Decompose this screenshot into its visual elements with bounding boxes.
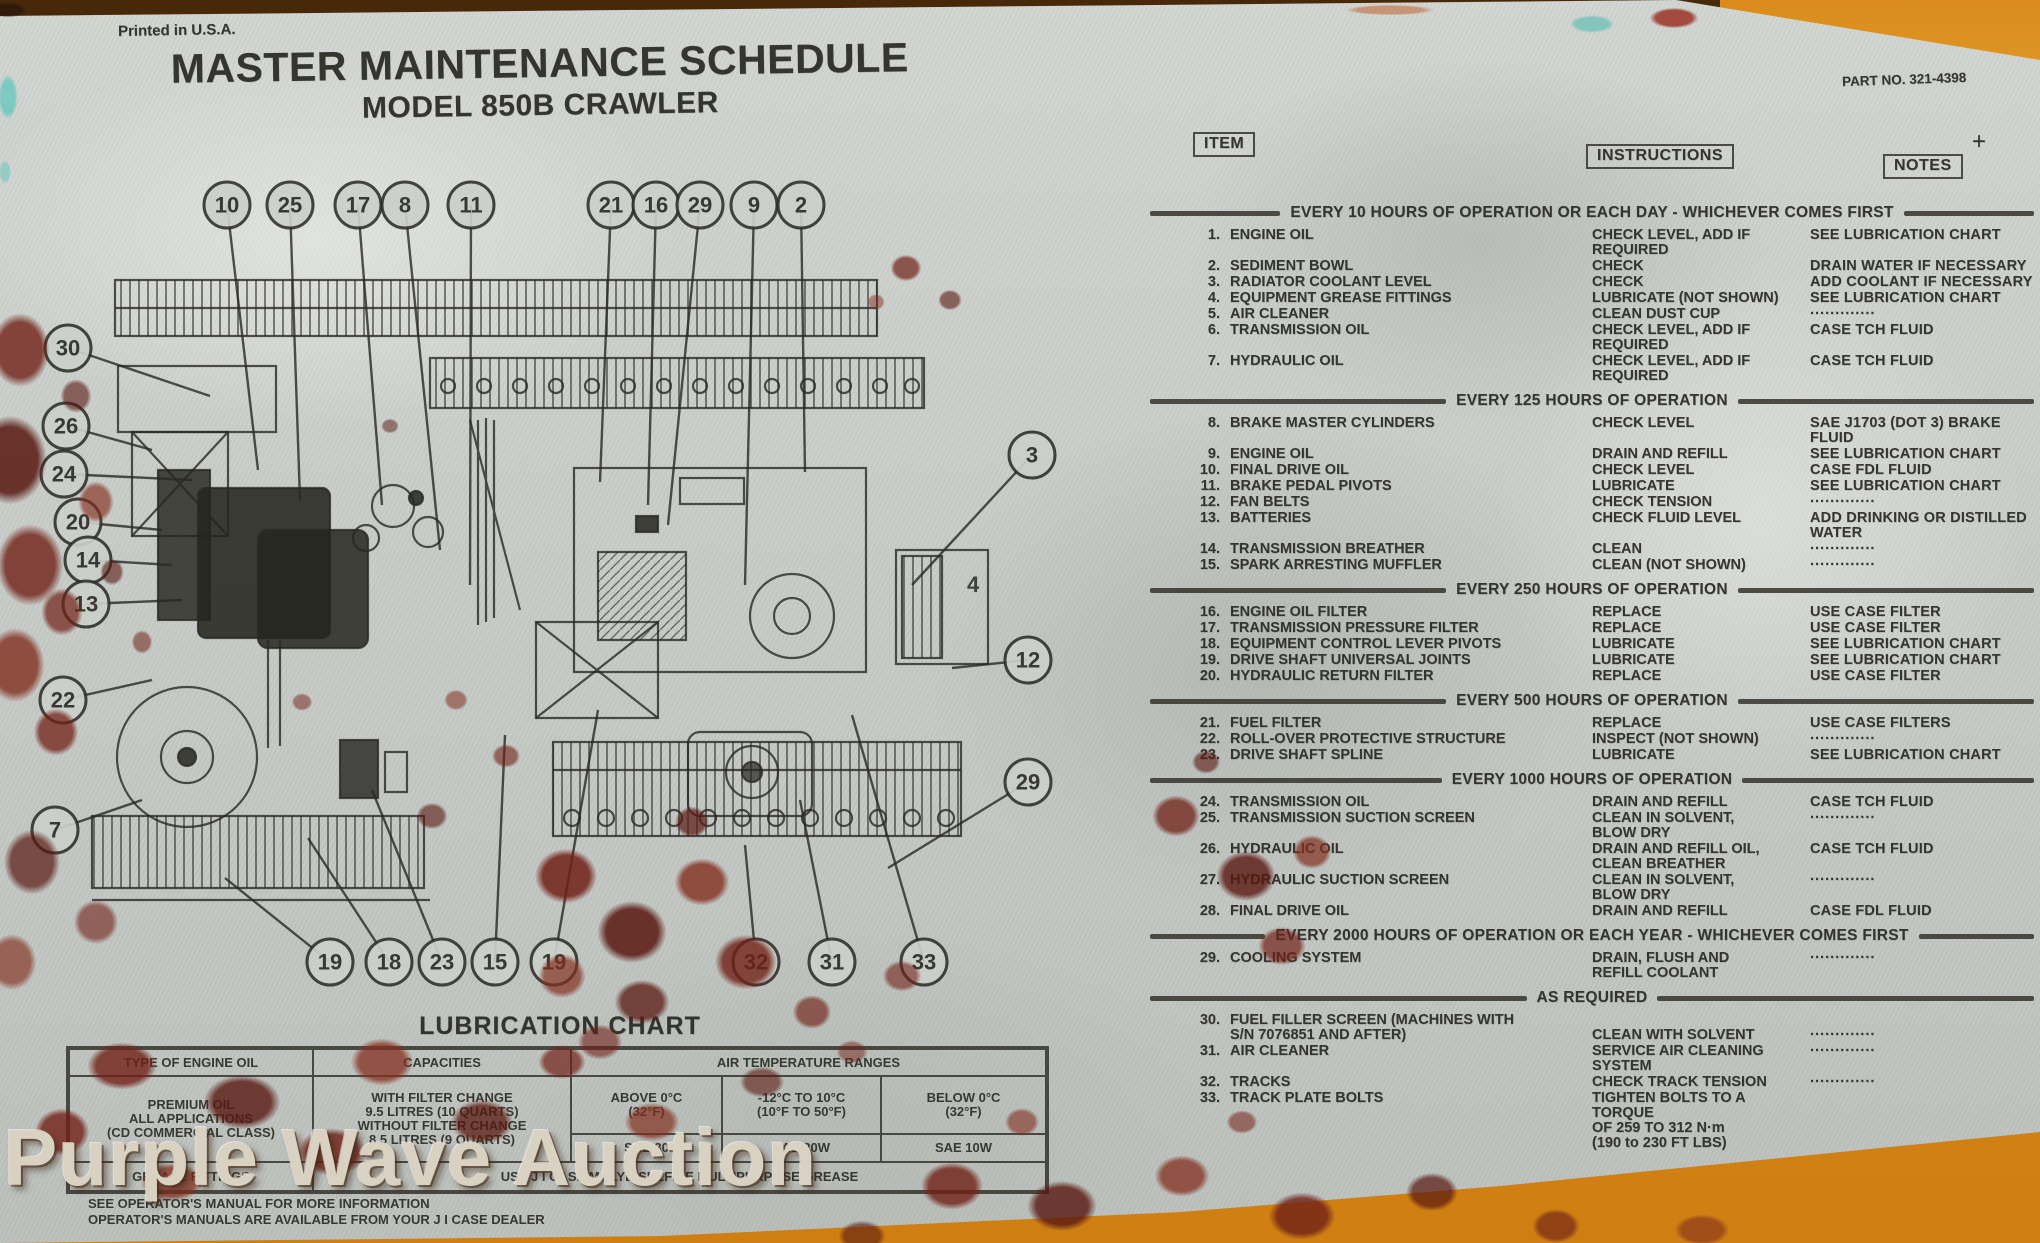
row-number: 25. (1150, 811, 1230, 841)
row-item: RADIATOR COOLANT LEVEL (1230, 275, 1592, 290)
row-instructions: CHECK LEVEL, ADD IF REQUIRED (1592, 323, 1810, 353)
section-bar: EVERY 2000 HOURS OF OPERATION OR EACH YE… (1150, 927, 2034, 945)
section-title: EVERY 1000 HOURS OF OPERATION (1452, 771, 1733, 789)
row-notes: SEE LUBRICATION CHART (1810, 653, 2034, 668)
row-instructions: CLEAN IN SOLVENT, BLOW DRY (1592, 873, 1810, 903)
bar-line (1150, 588, 1446, 593)
schedule-row: 10.FINAL DRIVE OILCHECK LEVELCASE FDL FL… (1150, 463, 2034, 478)
schedule-row: 30.FUEL FILLER SCREEN (MACHINES WITH S/N… (1150, 1013, 2034, 1043)
bar-line (1738, 699, 2034, 704)
row-number: 9. (1150, 447, 1230, 462)
callout-number-9: 9 (748, 193, 760, 218)
schedule-row: 33.TRACK PLATE BOLTSTIGHTEN BOLTS TO A T… (1150, 1091, 2034, 1151)
auction-watermark: Purple Wave Auction (4, 1112, 817, 1204)
callout-number-18: 18 (377, 950, 401, 975)
row-notes: ············· (1810, 1044, 2034, 1074)
callout-leader-line (495, 735, 505, 962)
lubrication-chart-title: LUBRICATION CHART (330, 1012, 790, 1041)
schedule-row: 24.TRANSMISSION OILDRAIN AND REFILLCASE … (1150, 795, 2034, 810)
row-instructions: REPLACE (1592, 669, 1810, 684)
row-instructions: CHECK FLUID LEVEL (1592, 511, 1810, 541)
schedule-sections: EVERY 10 HOURS OF OPERATION OR EACH DAY … (1150, 196, 2034, 1159)
row-item: ENGINE OIL FILTER (1230, 605, 1592, 620)
schedule-row: 22.ROLL-OVER PROTECTIVE STRUCTUREINSPECT… (1150, 732, 2034, 747)
row-item: TRANSMISSION OIL (1230, 323, 1592, 353)
section-title: AS REQUIRED (1537, 989, 1648, 1007)
column-header-notes: NOTES (1883, 154, 1963, 179)
bar-line (1657, 996, 2034, 1001)
row-notes: ············· (1810, 542, 2034, 557)
schedule-row: 11.BRAKE PEDAL PIVOTSLUBRICATESEE LUBRIC… (1150, 479, 2034, 494)
schedule-row: 1.ENGINE OILCHECK LEVEL, ADD IF REQUIRED… (1150, 228, 2034, 258)
schedule-row: 19.DRIVE SHAFT UNIVERSAL JOINTSLUBRICATE… (1150, 653, 2034, 668)
row-instructions: LUBRICATE (1592, 479, 1810, 494)
row-notes: ············· (1810, 1013, 2034, 1043)
schedule-row: 5.AIR CLEANERCLEAN DUST CUP············· (1150, 307, 2034, 322)
row-notes: USE CASE FILTER (1810, 669, 2034, 684)
row-number: 24. (1150, 795, 1230, 810)
row-number: 14. (1150, 542, 1230, 557)
bar-line (1150, 699, 1446, 704)
row-item: FUEL FILLER SCREEN (MACHINES WITH S/N 70… (1230, 1013, 1592, 1043)
row-number: 13. (1150, 511, 1230, 541)
row-item: ENGINE OIL (1230, 447, 1592, 462)
row-instructions: LUBRICATE (1592, 653, 1810, 668)
row-instructions: TIGHTEN BOLTS TO A TORQUE OF 259 TO 312 … (1592, 1091, 1810, 1151)
diagram-linework (92, 280, 988, 900)
row-number: 3. (1150, 275, 1230, 290)
section-bar: AS REQUIRED (1150, 989, 2034, 1007)
schedule-section: EVERY 1000 HOURS OF OPERATION24.TRANSMIS… (1150, 771, 2034, 919)
row-notes: SAE J1703 (DOT 3) BRAKE FLUID (1810, 416, 2034, 446)
row-item: SEDIMENT BOWL (1230, 259, 1592, 274)
row-notes: ADD DRINKING OR DISTILLED WATER (1810, 511, 2034, 541)
callout-number-25: 25 (278, 193, 302, 218)
schedule-row: 13.BATTERIESCHECK FLUID LEVELADD DRINKIN… (1150, 511, 2034, 541)
callout-number-8: 8 (399, 193, 411, 218)
callout-number-32: 32 (744, 950, 768, 975)
schedule-row: 27.HYDRAULIC SUCTION SCREENCLEAN IN SOLV… (1150, 873, 2034, 903)
callout-number-23: 23 (430, 950, 454, 975)
row-instructions: CHECK (1592, 259, 1810, 274)
row-item: TRANSMISSION OIL (1230, 795, 1592, 810)
row-number: 17. (1150, 621, 1230, 636)
row-notes: SEE LUBRICATION CHART (1810, 748, 2034, 763)
row-item: TRANSMISSION PRESSURE FILTER (1230, 621, 1592, 636)
row-notes: USE CASE FILTER (1810, 621, 2034, 636)
row-notes: ············· (1810, 307, 2034, 322)
callout-number-14: 14 (76, 548, 101, 573)
row-item: EQUIPMENT CONTROL LEVER PIVOTS (1230, 637, 1592, 652)
row-item: EQUIPMENT GREASE FITTINGS (1230, 291, 1592, 306)
row-instructions: REPLACE (1592, 621, 1810, 636)
bar-line (1742, 778, 2034, 783)
callout-number-10: 10 (215, 193, 239, 218)
row-notes: ············· (1810, 951, 2034, 981)
row-number: 16. (1150, 605, 1230, 620)
callout-number-2: 2 (795, 193, 807, 218)
row-instructions: CHECK TRACK TENSION (1592, 1075, 1810, 1090)
schedule-section: AS REQUIRED30.FUEL FILLER SCREEN (MACHIN… (1150, 989, 2034, 1151)
row-item: TRANSMISSION SUCTION SCREEN (1230, 811, 1592, 841)
plate-code: 770739C (1878, 1190, 1939, 1207)
bar-line (1919, 934, 2034, 939)
row-item: DRIVE SHAFT UNIVERSAL JOINTS (1230, 653, 1592, 668)
row-item: HYDRAULIC OIL (1230, 354, 1592, 384)
row-item: HYDRAULIC SUCTION SCREEN (1230, 873, 1592, 903)
schedule-row: 4.EQUIPMENT GREASE FITTINGSLUBRICATE (NO… (1150, 291, 2034, 306)
schedule-row: 3.RADIATOR COOLANT LEVELCHECKADD COOLANT… (1150, 275, 2034, 290)
callout-number-19: 19 (542, 950, 566, 975)
row-instructions: DRAIN AND REFILL (1592, 795, 1810, 810)
callout-leader-line (470, 205, 471, 585)
section-title: EVERY 125 HOURS OF OPERATION (1456, 392, 1728, 410)
row-item: AIR CLEANER (1230, 1044, 1592, 1074)
row-instructions: CHECK (1592, 275, 1810, 290)
row-instructions: LUBRICATE (1592, 748, 1810, 763)
row-item: FAN BELTS (1230, 495, 1592, 510)
row-item: HYDRAULIC RETURN FILTER (1230, 669, 1592, 684)
row-number: 27. (1150, 873, 1230, 903)
manual-note-2: OPERATOR'S MANUALS ARE AVAILABLE FROM YO… (88, 1212, 545, 1228)
section-title: EVERY 500 HOURS OF OPERATION (1456, 692, 1728, 710)
schedule-section: EVERY 2000 HOURS OF OPERATION OR EACH YE… (1150, 927, 2034, 981)
lub-sae-3: SAE 10W (881, 1134, 1046, 1162)
row-notes: ············· (1810, 1075, 2034, 1090)
row-instructions: CLEAN (1592, 542, 1810, 557)
callout-number-29: 29 (688, 193, 712, 218)
callout-number-13: 13 (74, 592, 98, 617)
section-bar: EVERY 125 HOURS OF OPERATION (1150, 392, 2034, 410)
schedule-row: 6.TRANSMISSION OILCHECK LEVEL, ADD IF RE… (1150, 323, 2034, 353)
callout-number-22: 22 (51, 688, 75, 713)
row-notes: SEE LUBRICATION CHART (1810, 447, 2034, 462)
row-item: SPARK ARRESTING MUFFLER (1230, 558, 1592, 573)
schedule-row: 28.FINAL DRIVE OILDRAIN AND REFILLCASE F… (1150, 904, 2034, 919)
row-instructions: CLEAN WITH SOLVENT (1592, 1013, 1810, 1043)
bar-line (1150, 778, 1442, 783)
row-item: TRACKS (1230, 1075, 1592, 1090)
schedule-row: 32.TRACKSCHECK TRACK TENSION············… (1150, 1075, 2034, 1090)
row-instructions: LUBRICATE (NOT SHOWN) (1592, 291, 1810, 306)
row-instructions: CHECK LEVEL, ADD IF REQUIRED (1592, 354, 1810, 384)
row-number: 2. (1150, 259, 1230, 274)
row-notes: SEE LUBRICATION CHART (1810, 291, 2034, 306)
row-instructions: DRAIN AND REFILL OIL, CLEAN BREATHER (1592, 842, 1810, 872)
callout-number-15: 15 (483, 950, 507, 975)
section-bar: EVERY 10 HOURS OF OPERATION OR EACH DAY … (1150, 204, 2034, 222)
schedule-row: 7.HYDRAULIC OILCHECK LEVEL, ADD IF REQUI… (1150, 354, 2034, 384)
row-instructions: CHECK LEVEL (1592, 416, 1810, 446)
schedule-row: 15.SPARK ARRESTING MUFFLERCLEAN (NOT SHO… (1150, 558, 2034, 573)
row-item: AIR CLEANER (1230, 307, 1592, 322)
row-number: 1. (1150, 228, 1230, 258)
row-notes: USE CASE FILTER (1810, 605, 2034, 620)
row-notes: CASE FDL FLUID (1810, 904, 2034, 919)
schedule-row: 21.FUEL FILTERREPLACEUSE CASE FILTERS (1150, 716, 2034, 731)
row-number: 7. (1150, 354, 1230, 384)
callout-number-7: 7 (49, 818, 61, 843)
row-item: BRAKE PEDAL PIVOTS (1230, 479, 1592, 494)
callout-number-19: 19 (318, 950, 342, 975)
section-bar: EVERY 1000 HOURS OF OPERATION (1150, 771, 2034, 789)
schedule-row: 29.COOLING SYSTEMDRAIN, FLUSH AND REFILL… (1150, 951, 2034, 981)
row-notes: CASE FDL FLUID (1810, 463, 2034, 478)
row-instructions: CLEAN (NOT SHOWN) (1592, 558, 1810, 573)
callout-leader-line (912, 455, 1032, 585)
row-number: 19. (1150, 653, 1230, 668)
callout-number-33: 33 (912, 950, 936, 975)
row-number: 12. (1150, 495, 1230, 510)
section-title: EVERY 250 HOURS OF OPERATION (1456, 581, 1728, 599)
row-number: 15. (1150, 558, 1230, 573)
row-instructions: CHECK TENSION (1592, 495, 1810, 510)
row-number: 10. (1150, 463, 1230, 478)
row-notes: ············· (1810, 558, 2034, 573)
row-item: FINAL DRIVE OIL (1230, 904, 1592, 919)
schedule-row: 16.ENGINE OIL FILTERREPLACEUSE CASE FILT… (1150, 605, 2034, 620)
row-item: ENGINE OIL (1230, 228, 1592, 258)
column-header-item: ITEM (1193, 132, 1255, 157)
row-number: 21. (1150, 716, 1230, 731)
row-number: 22. (1150, 732, 1230, 747)
row-item: TRACK PLATE BOLTS (1230, 1091, 1592, 1151)
schedule-row: 9.ENGINE OILDRAIN AND REFILLSEE LUBRICAT… (1150, 447, 2034, 462)
callout-number-24: 24 (52, 462, 77, 487)
callout-number-17: 17 (346, 193, 370, 218)
callout-number-3: 3 (1026, 443, 1038, 468)
row-item: TRANSMISSION BREATHER (1230, 542, 1592, 557)
row-number: 8. (1150, 416, 1230, 446)
schedule-section: EVERY 125 HOURS OF OPERATION8.BRAKE MAST… (1150, 392, 2034, 573)
row-item: DRIVE SHAFT SPLINE (1230, 748, 1592, 763)
row-notes: CASE TCH FLUID (1810, 323, 2034, 353)
bar-line (1738, 399, 2034, 404)
schedule-row: 23.DRIVE SHAFT SPLINELUBRICATESEE LUBRIC… (1150, 748, 2034, 763)
callout-number-29: 29 (1016, 770, 1040, 795)
schedule-row: 31.AIR CLEANERSERVICE AIR CLEANING SYSTE… (1150, 1044, 2034, 1074)
row-notes: SEE LUBRICATION CHART (1810, 228, 2034, 258)
row-notes: ············· (1810, 732, 2034, 747)
row-notes: CASE TCH FLUID (1810, 354, 2034, 384)
row-item: HYDRAULIC OIL (1230, 842, 1592, 872)
row-notes: ············· (1810, 811, 2034, 841)
row-instructions: REPLACE (1592, 716, 1810, 731)
row-notes: CASE TCH FLUID (1810, 842, 2034, 872)
row-instructions: SERVICE AIR CLEANING SYSTEM (1592, 1044, 1810, 1074)
row-instructions: CHECK LEVEL, ADD IF REQUIRED (1592, 228, 1810, 258)
row-number: 20. (1150, 669, 1230, 684)
bar-line (1150, 399, 1446, 404)
schedule-row: 20.HYDRAULIC RETURN FILTERREPLACEUSE CAS… (1150, 669, 2034, 684)
callout-number-30: 30 (56, 336, 80, 361)
row-number: 33. (1150, 1091, 1230, 1151)
maintenance-plate: Printed in U.S.A. MASTER MAINTENANCE SCH… (0, 0, 2040, 1243)
row-notes: USE CASE FILTERS (1810, 716, 2034, 731)
column-header-instructions: INSTRUCTIONS (1586, 144, 1734, 169)
row-number: 32. (1150, 1075, 1230, 1090)
schedule-row: 26.HYDRAULIC OILDRAIN AND REFILL OIL, CL… (1150, 842, 2034, 872)
schedule-row: 25.TRANSMISSION SUCTION SCREENCLEAN IN S… (1150, 811, 2034, 841)
row-number: 29. (1150, 951, 1230, 981)
row-item: FINAL DRIVE OIL (1230, 463, 1592, 478)
row-notes: ADD COOLANT IF NECESSARY (1810, 275, 2034, 290)
row-number: 23. (1150, 748, 1230, 763)
row-notes: DRAIN WATER IF NECESSARY (1810, 259, 2034, 274)
lub-header-capacities: CAPACITIES (313, 1049, 571, 1076)
row-number: 11. (1150, 479, 1230, 494)
section-title: EVERY 2000 HOURS OF OPERATION OR EACH YE… (1275, 927, 1908, 945)
callout-number-26: 26 (54, 414, 78, 439)
row-instructions: CLEAN DUST CUP (1592, 307, 1810, 322)
callout-number-11: 11 (459, 193, 482, 218)
bar-line (1150, 211, 1280, 216)
lub-header-air-temp: AIR TEMPERATURE RANGES (571, 1049, 1046, 1076)
callout-leader-line (227, 205, 258, 470)
row-notes: ············· (1810, 873, 2034, 903)
row-notes: SEE LUBRICATION CHART (1810, 479, 2034, 494)
row-instructions: DRAIN, FLUSH AND REFILL COOLANT (1592, 951, 1810, 981)
callout-number-31: 31 (820, 950, 844, 975)
bar-line (1150, 996, 1527, 1001)
row-instructions: CHECK LEVEL (1592, 463, 1810, 478)
lub-temp-range-3: BELOW 0°C (32°F) (881, 1076, 1046, 1134)
row-instructions: LUBRICATE (1592, 637, 1810, 652)
schedule-section: EVERY 10 HOURS OF OPERATION OR EACH DAY … (1150, 204, 2034, 384)
callout-leader-line (358, 205, 382, 505)
schedule-section: EVERY 250 HOURS OF OPERATION16.ENGINE OI… (1150, 581, 2034, 684)
callout-number-12: 12 (1016, 648, 1040, 673)
callout-leader-line (600, 205, 611, 482)
row-instructions: INSPECT (NOT SHOWN) (1592, 732, 1810, 747)
section-bar: EVERY 250 HOURS OF OPERATION (1150, 581, 2034, 599)
schedule-row: 14.TRANSMISSION BREATHERCLEAN···········… (1150, 542, 2034, 557)
row-instructions: DRAIN AND REFILL (1592, 447, 1810, 462)
schedule-row: 8.BRAKE MASTER CYLINDERSCHECK LEVELSAE J… (1150, 416, 2034, 446)
row-number: 4. (1150, 291, 1230, 306)
callout-leader-line (290, 205, 300, 500)
row-item: BRAKE MASTER CYLINDERS (1230, 416, 1592, 446)
bar-line (1150, 934, 1265, 939)
row-notes (1810, 1091, 2034, 1151)
row-item: FUEL FILTER (1230, 716, 1592, 731)
schedule-row: 17.TRANSMISSION PRESSURE FILTERREPLACEUS… (1150, 621, 2034, 636)
diagram-label-4: 4 (967, 572, 980, 597)
bar-line (1738, 588, 2034, 593)
bar-line (1904, 211, 2034, 216)
row-item: BATTERIES (1230, 511, 1592, 541)
photo-canvas: Printed in U.S.A. MASTER MAINTENANCE SCH… (0, 0, 2040, 1243)
callout-number-20: 20 (66, 510, 90, 535)
row-item: COOLING SYSTEM (1230, 951, 1592, 981)
row-item: ROLL-OVER PROTECTIVE STRUCTURE (1230, 732, 1592, 747)
section-title: EVERY 10 HOURS OF OPERATION OR EACH DAY … (1290, 204, 1893, 222)
schedule-section: EVERY 500 HOURS OF OPERATION21.FUEL FILT… (1150, 692, 2034, 763)
row-notes: SEE LUBRICATION CHART (1810, 637, 2034, 652)
schedule-row: 18.EQUIPMENT CONTROL LEVER PIVOTSLUBRICA… (1150, 637, 2034, 652)
row-instructions: DRAIN AND REFILL (1592, 904, 1810, 919)
section-bar: EVERY 500 HOURS OF OPERATION (1150, 692, 2034, 710)
row-number: 18. (1150, 637, 1230, 652)
row-number: 31. (1150, 1044, 1230, 1074)
schedule-row: 2.SEDIMENT BOWLCHECKDRAIN WATER IF NECES… (1150, 259, 2034, 274)
schedule-row: 12.FAN BELTSCHECK TENSION············· (1150, 495, 2034, 510)
lub-header-oil-type: TYPE OF ENGINE OIL (69, 1049, 313, 1076)
callout-number-16: 16 (644, 193, 668, 218)
callout-leader-line (801, 205, 805, 472)
row-number: 6. (1150, 323, 1230, 353)
row-number: 5. (1150, 307, 1230, 322)
row-instructions: CLEAN IN SOLVENT, BLOW DRY (1592, 811, 1810, 841)
row-notes: CASE TCH FLUID (1810, 795, 2034, 810)
row-number: 28. (1150, 904, 1230, 919)
callout-number-21: 21 (599, 193, 623, 218)
callout-leader-line (648, 205, 656, 505)
row-instructions: REPLACE (1592, 605, 1810, 620)
row-number: 26. (1150, 842, 1230, 872)
row-number: 30. (1150, 1013, 1230, 1043)
row-notes: ············· (1810, 495, 2034, 510)
